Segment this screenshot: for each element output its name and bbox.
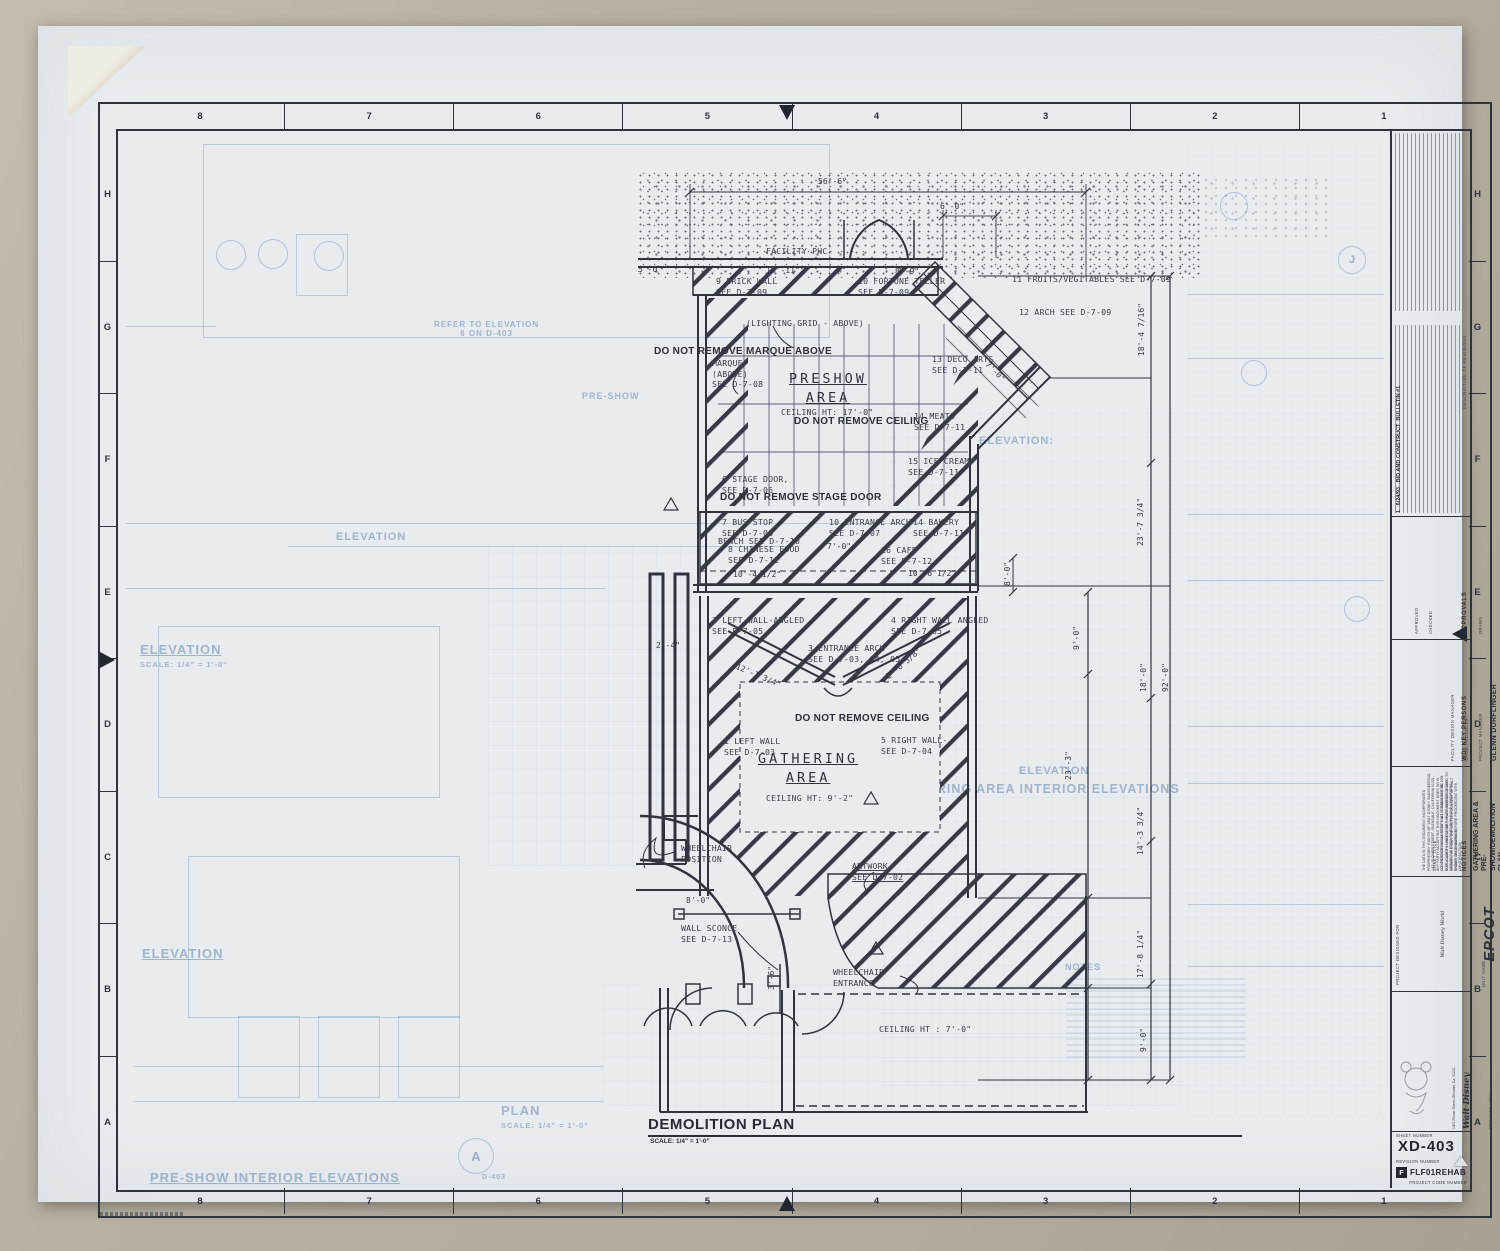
grid-cell: 2: [1131, 1188, 1300, 1214]
sheet-title: SHEET TITLE GATHERING AREA & PRE-SHOW/DE…: [1396, 797, 1500, 871]
designed-for-label: PROJECT DESIGNED FOR: [1395, 924, 1400, 985]
grid-cell: H: [99, 129, 116, 262]
divider: [1392, 876, 1470, 877]
inner-border: [116, 129, 1472, 1192]
grid-cell: 8: [116, 103, 285, 129]
reprint-fineprint: [100, 1212, 184, 1216]
divider: [1392, 991, 1470, 992]
fdm-label: FACILITY DESIGN MANAGER: [1450, 684, 1455, 761]
project-code: FLF01REHAB: [1410, 1168, 1466, 1177]
project-code-label: PROJECT CODE NUMBER: [1392, 1178, 1470, 1185]
grid-cell: H: [1469, 129, 1486, 262]
grid-cell: F: [99, 394, 116, 527]
grid-cell: 5: [623, 1188, 792, 1214]
grid-cell: 6: [454, 1188, 623, 1214]
fdm-name: GLENN DURFLINGER: [1491, 684, 1498, 761]
grid-cell: A: [99, 1057, 116, 1189]
approvals-drawn: DRAWN EARLE MacVEIGH: [1442, 569, 1500, 634]
project-area: PROJECT AREA FUTURE WORLD: [1452, 1058, 1500, 1129]
checked-label: CHECKED: [1428, 611, 1433, 634]
sheet-number-label: SHEET NUMBER: [1392, 1131, 1470, 1138]
scanned-blueprint-photo: ELEVATION SCALE: 1/4" = 1'-0" REFER TO E…: [0, 0, 1500, 1251]
revision-grid: [1395, 325, 1463, 513]
grid-letters-right: H G F E D C B A: [1469, 129, 1486, 1188]
center-mark-bottom: [779, 1196, 795, 1211]
grid-cell: 4: [793, 103, 962, 129]
grid-cell: G: [1469, 262, 1486, 395]
grid-cell: 1: [1300, 103, 1468, 129]
grid-cell: G: [99, 262, 116, 395]
divider: [1392, 766, 1470, 767]
grid-cell: 2: [1131, 103, 1300, 129]
grid-cell: B: [99, 924, 116, 1057]
grid-cell: E: [99, 527, 116, 660]
grid-cell: D: [99, 659, 116, 792]
title-block: DESCRIPTION OF REVISIONS 1 6/24/93 BID A…: [1390, 129, 1470, 1188]
drawn-label: DRAWN: [1478, 569, 1483, 634]
drawing-sheet: ELEVATION SCALE: 1/4" = 1'-0" REFER TO E…: [38, 26, 1462, 1202]
grid-cell: 4: [793, 1188, 962, 1214]
sheet-id-block: SHEET NUMBER XD-403 REVISION NUMBER F FL…: [1392, 1131, 1470, 1188]
revision-entry: 1 6/24/93 BID AND CONSTRUCT BULLETIN #1: [1396, 386, 1402, 513]
revision-number-label: REVISION NUMBER: [1396, 1159, 1440, 1164]
grid-cell: C: [99, 792, 116, 925]
grid-cell: 6: [454, 103, 623, 129]
sheet-title-label: SHEET TITLE: [1432, 797, 1437, 871]
revision-grid: [1395, 133, 1463, 311]
grid-cell: 8: [116, 1188, 285, 1214]
center-mark-top: [779, 105, 795, 120]
divider: [1392, 639, 1470, 640]
unit-name: UNIT NAME LAND PAVILLION: [1445, 914, 1500, 987]
grid-cell: 7: [285, 1188, 454, 1214]
sheet-number: XD-403: [1392, 1138, 1470, 1155]
project-area-label: PROJECT AREA: [1488, 1058, 1493, 1129]
grid-cell: 3: [962, 1188, 1131, 1214]
revision-letter-box: F: [1396, 1167, 1407, 1178]
revision-triangle-icon: [1454, 1156, 1468, 1166]
grid-cell: 7: [285, 103, 454, 129]
grid-cell: F: [1469, 394, 1486, 527]
center-mark-left: [100, 652, 115, 668]
approved-label: APPROVED: [1414, 608, 1419, 634]
sheet-title-text: GATHERING AREA & PRE-SHOW/DEMOLITION PLA…: [1473, 797, 1500, 871]
grid-cell: 3: [962, 103, 1131, 129]
revision-table-header: DESCRIPTION OF REVISIONS: [1462, 335, 1467, 409]
divider: [1392, 516, 1470, 517]
grid-cell: 5: [623, 103, 792, 129]
unit-name-label: UNIT NAME: [1481, 914, 1486, 987]
grid-cell: 1: [1300, 1188, 1468, 1214]
facility-design-manager: FACILITY DESIGN MANAGER GLENN DURFLINGER: [1414, 684, 1500, 761]
